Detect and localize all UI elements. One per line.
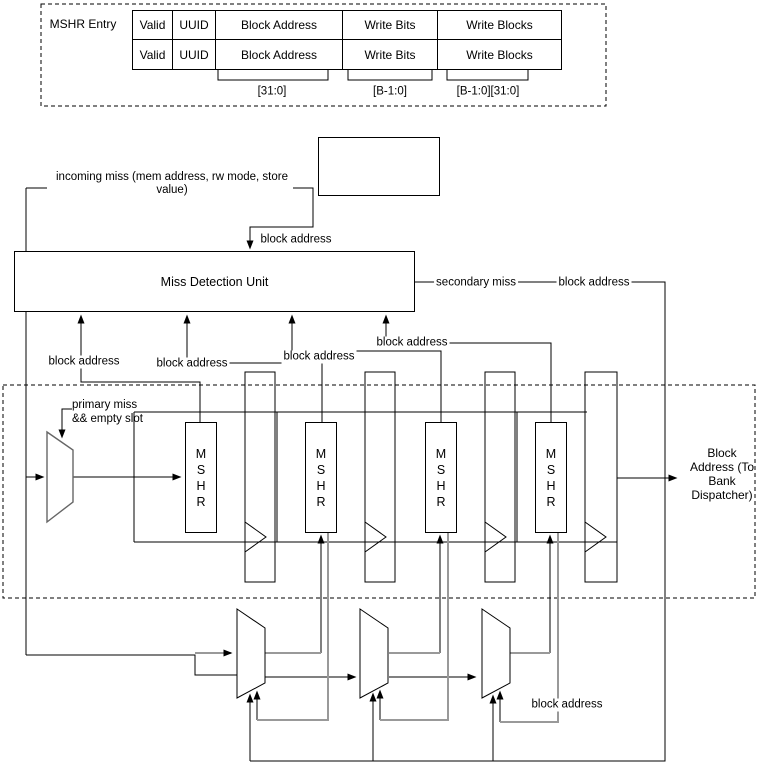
entry-cell: Write Blocks [438, 11, 561, 40]
entry-cell: Write Blocks [438, 40, 561, 69]
mshr-register-2: MSHR [305, 422, 337, 533]
output-block-address-label: Block Address (To Bank Dispatcher) [685, 446, 757, 502]
bit-range-label: [31:0] [258, 86, 287, 99]
block-address-label: block address [282, 351, 357, 364]
entry-table: Valid UUID Block Address Write Bits Writ… [132, 10, 562, 70]
entry-cell: Write Bits [343, 11, 438, 40]
incoming-miss-label: incoming miss (mem address, rw mode, sto… [44, 171, 300, 197]
mux-select-arrow [62, 409, 72, 437]
entry-cell: Write Bits [343, 40, 438, 69]
mshr-register-1: MSHR [185, 422, 217, 533]
mshr-entry-label: MSHR Entry [42, 18, 124, 31]
entry-cell: Block Address [216, 40, 343, 69]
entry-cell: Valid [133, 40, 173, 69]
block-address-label: block address [155, 358, 230, 371]
mshr-label: MSHR [545, 446, 558, 510]
mshr-label: MSHR [195, 446, 208, 510]
mshr-label: MSHR [315, 446, 328, 510]
block-address-label: block address [530, 699, 605, 712]
block-address-label: block address [375, 337, 450, 350]
mshr-architecture-diagram: MSHR Entry Valid UUID Block Address Writ… [0, 0, 757, 771]
mshr-register-4: MSHR [535, 422, 567, 533]
block-address-label: block address [47, 356, 122, 369]
block-address-compare-edges [81, 316, 551, 422]
entry-cell: Block Address [216, 11, 343, 40]
bit-range-brackets [218, 70, 528, 80]
entry-cell: Valid [133, 11, 173, 40]
entry-cell: UUID [173, 40, 216, 69]
bit-range-label: [B-1:0] [373, 86, 407, 99]
secondary-miss-label: secondary miss [434, 277, 518, 290]
miss-detection-unit: Miss Detection Unit [14, 251, 415, 312]
unlabeled-box [318, 137, 440, 196]
block-address-label: block address [557, 277, 632, 290]
diagram-lines [0, 0, 757, 771]
mshr-register-3: MSHR [425, 422, 457, 533]
allocate-mux-shape [47, 432, 73, 522]
bit-range-label: [B-1:0][31:0] [457, 86, 520, 99]
block-address-label: block address [261, 234, 332, 247]
mshr-label: MSHR [435, 446, 448, 510]
primary-miss-label: primary miss && empty slot [72, 398, 143, 426]
entry-cell: UUID [173, 11, 216, 40]
